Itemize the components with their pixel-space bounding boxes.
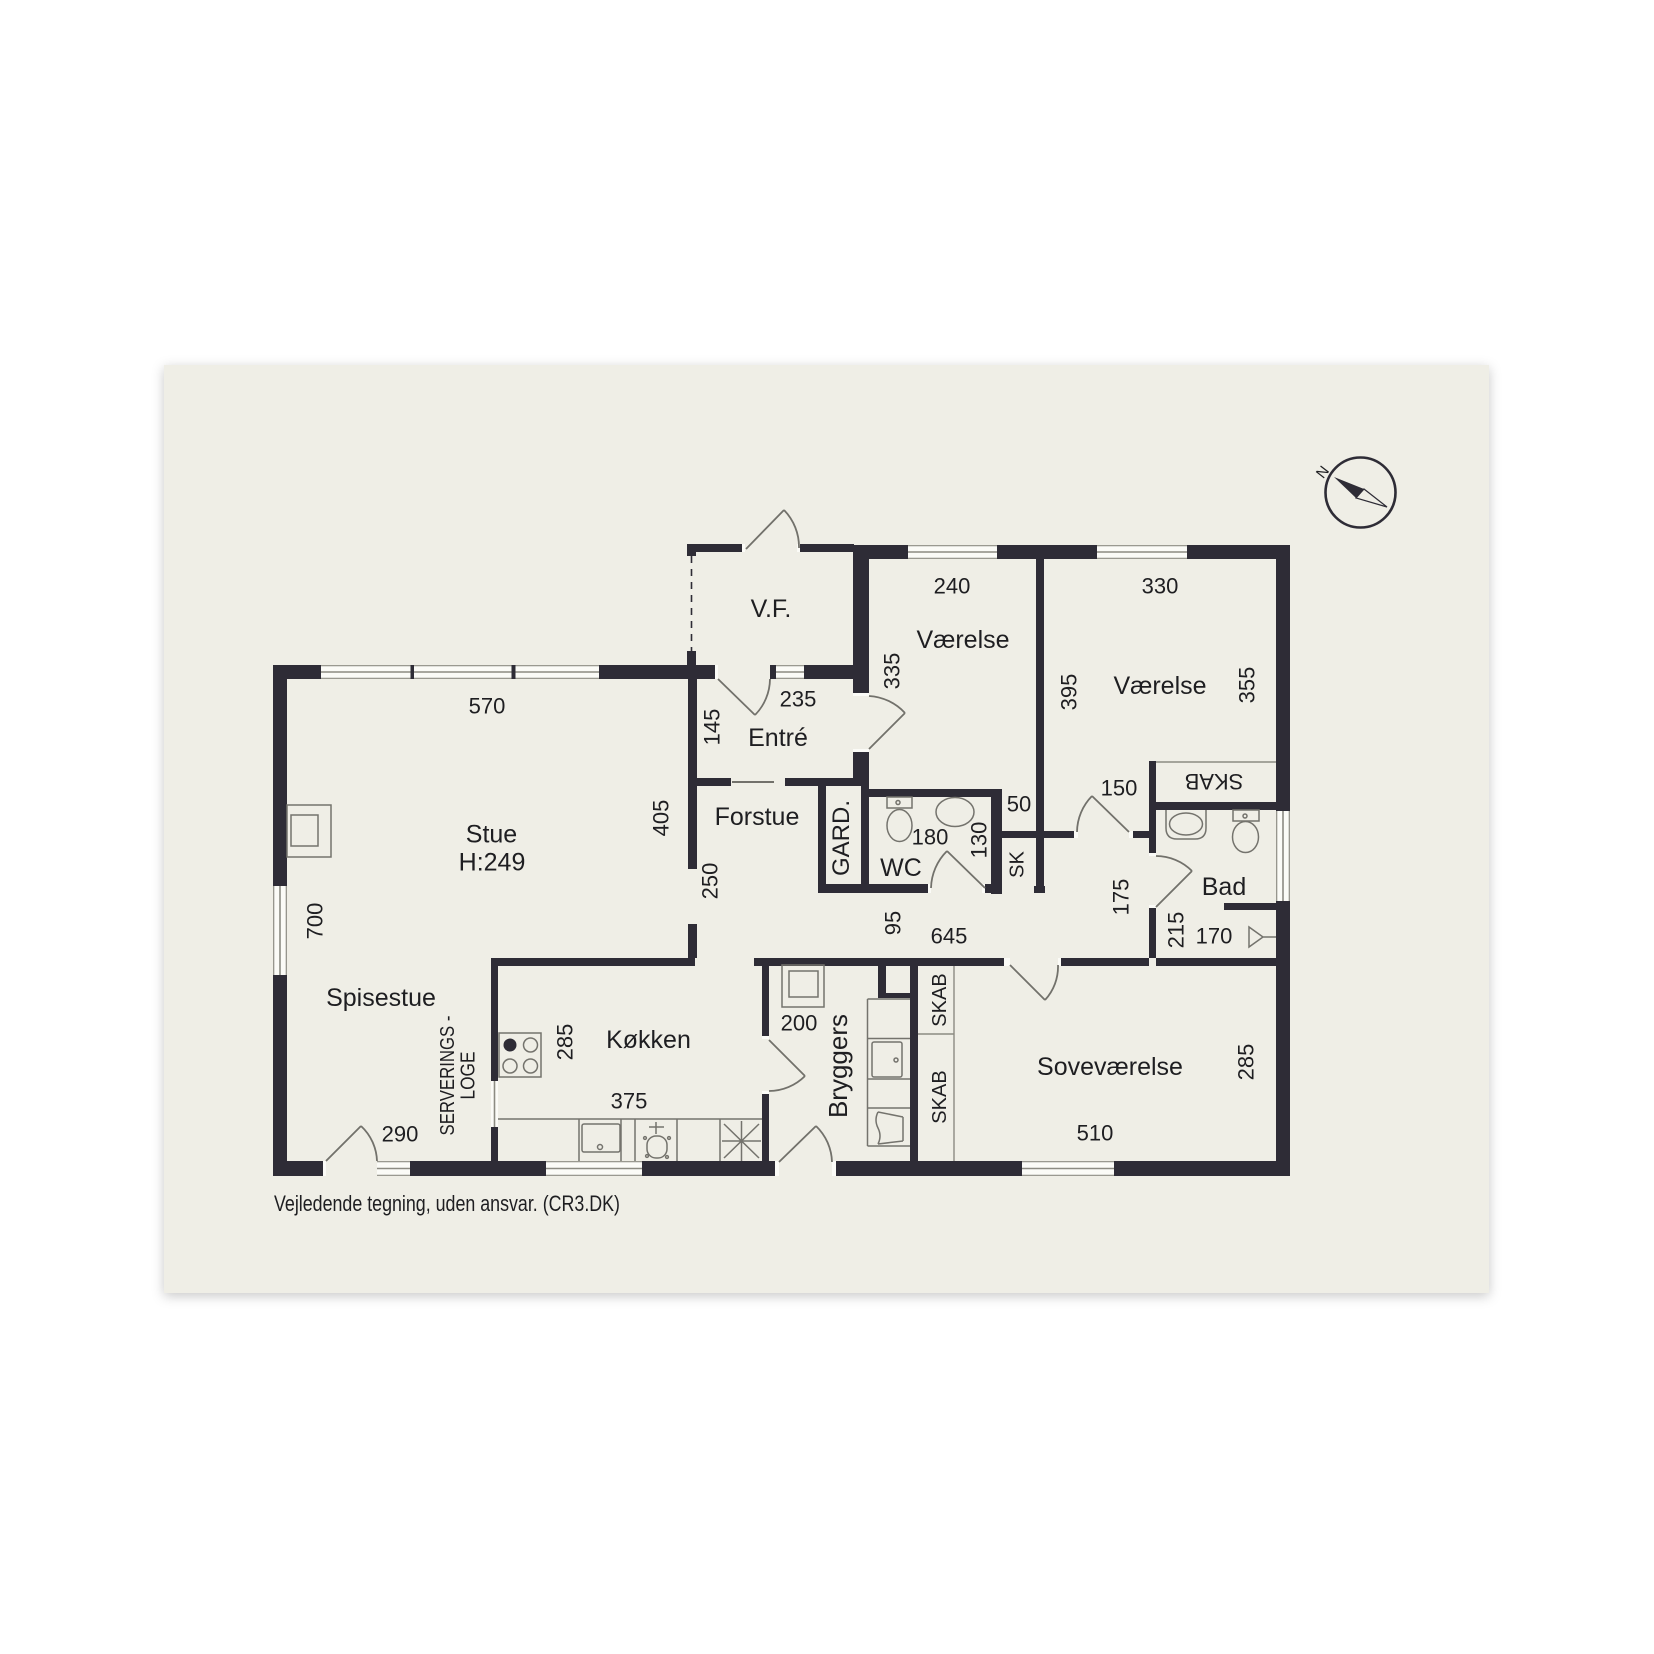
svg-text:700: 700: [303, 903, 328, 940]
svg-text:Bryggers: Bryggers: [823, 1014, 853, 1118]
svg-text:SKAB: SKAB: [929, 1070, 951, 1123]
svg-text:510: 510: [1077, 1121, 1114, 1146]
svg-text:170: 170: [1196, 924, 1233, 949]
svg-text:570: 570: [469, 694, 506, 719]
svg-text:175: 175: [1109, 879, 1134, 916]
svg-text:H:249: H:249: [459, 849, 526, 877]
svg-text:SKAB: SKAB: [1185, 769, 1244, 794]
svg-text:GARD.: GARD.: [828, 800, 855, 876]
svg-text:95: 95: [881, 911, 906, 935]
svg-text:235: 235: [780, 687, 817, 712]
svg-text:Vejledende tegning, uden ansva: Vejledende tegning, uden ansvar. (CR3.DK…: [274, 1191, 620, 1216]
svg-text:Værelse: Værelse: [1113, 672, 1206, 700]
svg-text:Entré: Entré: [748, 724, 808, 752]
svg-text:215: 215: [1164, 912, 1189, 949]
svg-text:Værelse: Værelse: [916, 626, 1009, 654]
svg-text:240: 240: [934, 574, 971, 599]
svg-text:LOGE: LOGE: [457, 1052, 479, 1100]
svg-text:145: 145: [700, 709, 725, 746]
svg-text:Forstue: Forstue: [715, 803, 800, 831]
svg-text:405: 405: [649, 800, 674, 837]
svg-text:Køkken: Køkken: [606, 1026, 691, 1054]
svg-text:290: 290: [382, 1122, 419, 1147]
svg-text:WC: WC: [880, 854, 922, 882]
svg-text:375: 375: [611, 1089, 648, 1114]
svg-text:330: 330: [1142, 574, 1179, 599]
svg-text:SKAB: SKAB: [929, 973, 951, 1026]
svg-text:335: 335: [880, 653, 905, 690]
svg-text:395: 395: [1057, 674, 1082, 711]
svg-text:150: 150: [1101, 776, 1138, 801]
svg-text:180: 180: [912, 825, 949, 850]
svg-text:645: 645: [931, 924, 968, 949]
svg-text:250: 250: [698, 863, 723, 900]
svg-text:50: 50: [1007, 792, 1031, 817]
svg-text:130: 130: [967, 822, 992, 859]
svg-text:SERVERINGS -: SERVERINGS -: [437, 1016, 459, 1136]
svg-text:SK: SK: [1007, 851, 1029, 878]
svg-text:355: 355: [1235, 667, 1260, 704]
svg-text:V.F.: V.F.: [751, 595, 792, 623]
svg-text:Spisestue: Spisestue: [326, 984, 436, 1012]
svg-text:Stue: Stue: [466, 821, 517, 849]
svg-text:285: 285: [553, 1024, 578, 1061]
svg-text:Soveværelse: Soveværelse: [1037, 1053, 1183, 1081]
svg-text:200: 200: [781, 1011, 818, 1036]
svg-text:Bad: Bad: [1202, 873, 1246, 901]
svg-text:285: 285: [1234, 1044, 1259, 1081]
